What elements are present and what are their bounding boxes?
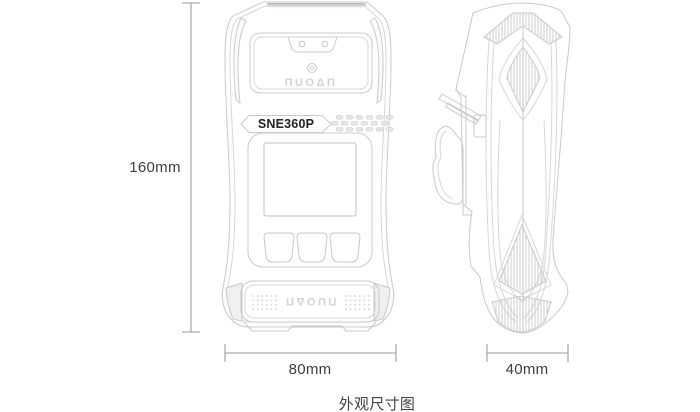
height-dimension-label: 160mm xyxy=(115,159,195,176)
display-panel xyxy=(248,133,372,267)
button-left xyxy=(264,233,294,262)
clip-lever-arm xyxy=(439,94,481,121)
line-art xyxy=(0,0,700,412)
top-cap-shade xyxy=(267,3,366,10)
clip-hook-inner xyxy=(438,131,453,199)
button-right xyxy=(330,233,360,262)
brand-logo-bottom: ΠUOΔΠ xyxy=(278,295,342,307)
brand-logo-top: ΠUOΔΠ xyxy=(279,77,343,89)
button-middle xyxy=(297,233,327,262)
sensor-notch xyxy=(288,37,337,52)
side-depth-dimension-label: 40mm xyxy=(487,361,567,378)
diagram-caption: 外观尺寸图 xyxy=(317,393,437,412)
side-view xyxy=(433,3,570,333)
belt-clip xyxy=(433,90,486,215)
display-screen xyxy=(264,143,356,216)
sensor-hole-right xyxy=(322,41,328,47)
front-width-dimension-label: 80mm xyxy=(270,361,350,378)
side-depth-dimension-line xyxy=(487,344,568,362)
bumper-top-left xyxy=(234,18,246,103)
model-label: SNE360P xyxy=(246,117,326,131)
bottom-grip xyxy=(492,296,551,332)
buzzer-hole-inner xyxy=(310,66,314,70)
dimension-diagram: 160mm 80mm 40mm 外观尺寸图 SNE360P ΠUOΔΠ ΠUOΔ… xyxy=(0,0,700,412)
front-view xyxy=(222,2,393,331)
clip-hook xyxy=(433,126,463,204)
front-body-inner-line xyxy=(227,6,388,322)
sensor-hole-left xyxy=(299,41,305,47)
vent-dots-left xyxy=(252,295,277,310)
triangle-grip xyxy=(499,225,546,294)
front-width-dimension-line xyxy=(225,344,396,362)
buzzer-hole-outer xyxy=(308,64,317,73)
vent-dots-right xyxy=(345,295,370,310)
